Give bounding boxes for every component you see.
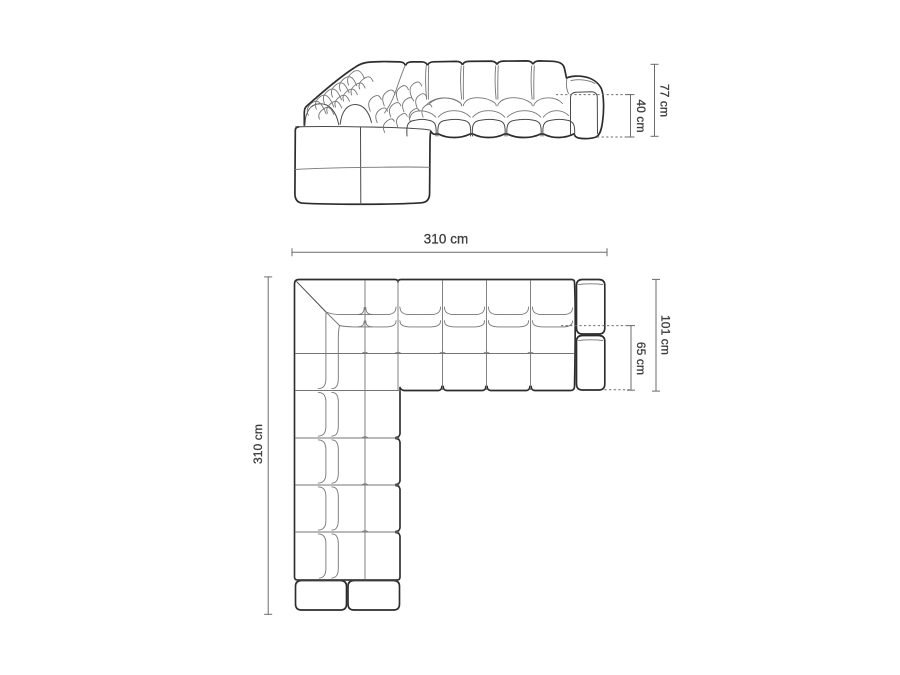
svg-text:101 cm: 101 cm (659, 315, 673, 355)
svg-text:40 cm: 40 cm (634, 99, 648, 132)
svg-text:65 cm: 65 cm (634, 342, 648, 375)
svg-text:77 cm: 77 cm (658, 84, 672, 117)
svg-text:310 cm: 310 cm (424, 231, 469, 246)
svg-text:310 cm: 310 cm (251, 424, 265, 464)
